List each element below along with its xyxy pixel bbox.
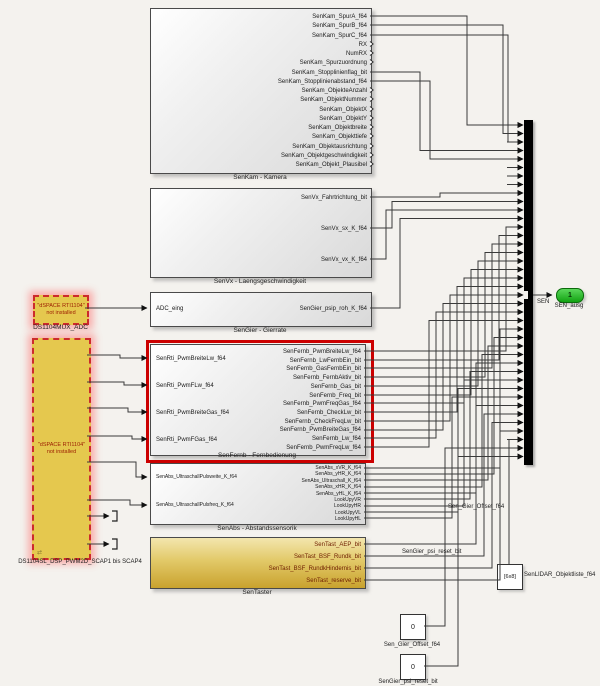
wire (364, 312, 523, 438)
block-senvx[interactable]: SenVx_Fahrtrichtung_bit SenVx_sx_K_f64 S… (150, 188, 372, 278)
constant-label-gier-offset: Sen_Gier_Offset_f64 (352, 642, 472, 648)
outport-label: SEN_ausg (546, 303, 592, 309)
wire (364, 287, 523, 413)
wire (364, 304, 523, 431)
wire (370, 35, 523, 142)
wire (364, 346, 523, 480)
wire (424, 448, 523, 626)
port-label: SenAbs_xHR_K_f64 (315, 485, 365, 490)
constant-gier-offset[interactable]: 0 (400, 614, 426, 640)
wire (424, 457, 523, 667)
port-label: SenKam_Objektgeschwindigkeit (281, 153, 371, 159)
selection-highlight (146, 340, 374, 463)
constant-value: [6x8] (504, 574, 516, 580)
block-label-ds1104mux-adc: DS1104MUX_ADC (18, 324, 103, 331)
port-label: SenVx_sx_K_f64 (321, 226, 371, 232)
constant-value: 0 (411, 664, 415, 671)
port-label: SenKam_Stopplinienabstand_f64 (278, 79, 371, 85)
dspace-title: "dSPACE RTI1104" (38, 442, 85, 449)
wire (370, 202, 523, 229)
block-label-ds1104sl: DS1104SL_DSP_PWM2D_SCAP1 bis SCAP4 (0, 559, 160, 565)
port-label: SenAbs_xVR_K_f64 (315, 466, 365, 471)
port-label: SenVx_vx_K_f64 (321, 257, 371, 263)
port-label: RX (359, 42, 371, 48)
wire (364, 372, 523, 500)
constant-value: 0 (411, 624, 415, 631)
simulink-canvas: SenKam_SpurA_f64 SenKam_SpurB_f64 SenKam… (0, 0, 600, 686)
wire (364, 397, 523, 518)
wire (364, 389, 523, 513)
wire (364, 329, 523, 468)
port-label: SenKam_Stopplinienflag_bit (292, 70, 371, 76)
wire (364, 380, 523, 506)
wire (364, 423, 523, 569)
wire (364, 406, 523, 545)
wire (87, 500, 147, 505)
port-label: LookUpyHL (335, 517, 365, 522)
wire (370, 72, 523, 151)
constant-lidar[interactable]: [6x8] (497, 564, 523, 590)
port-label: ADC_eing (156, 306, 183, 312)
port-label: SenTast_BSF_Rundk_bit (294, 554, 365, 560)
wire (87, 355, 147, 358)
wire (364, 321, 523, 448)
wire (370, 25, 523, 134)
port-label: LookUpyHR (334, 504, 365, 509)
wire (364, 261, 523, 386)
port-label: SenKam_SpurC_f64 (312, 33, 371, 39)
port-label: SenTast_BSF_RundkHindernis_bit (269, 566, 365, 572)
port-label: SenKam_SpurA_f64 (312, 14, 371, 20)
block-label-sengier: SenGier - Gierrate (150, 327, 370, 334)
port-label: SenKam_Objektausrichtung (292, 144, 371, 150)
wire (370, 210, 523, 259)
port-label: SenKam_ObjekteAnzahl (302, 88, 371, 94)
terminator-icons (112, 511, 117, 549)
library-link-icon: ⇄ (37, 549, 42, 556)
wire (370, 81, 523, 159)
port-label: NumRX (346, 51, 371, 57)
port-label: SenAbs_yHL_K_f64 (316, 492, 365, 497)
block-ds1104sl[interactable]: "dSPACE RTI1104" not installed ⇄ (32, 338, 91, 560)
block-label-senabs: SenAbs - Abstandssensorik (150, 525, 364, 532)
block-senkam[interactable]: SenKam_SpurA_f64 SenKam_SpurB_f64 SenKam… (150, 8, 372, 174)
block-label-sentaster: SenTaster (150, 589, 364, 596)
dspace-subtitle: not installed (46, 310, 75, 317)
port-label: SenKam_Objekttiefe (312, 134, 371, 140)
wire (364, 414, 523, 556)
wire (364, 278, 523, 403)
port-label: SenKam_Objekt_Plausibel (296, 162, 371, 168)
port-label: LookUpyVR (334, 498, 365, 503)
wire (364, 431, 523, 580)
wire (87, 408, 147, 412)
mux-input-stubs (507, 125, 523, 457)
block-sentaster[interactable]: SenTast_AEP_bit SenTast_BSF_Rundk_bit Se… (150, 537, 366, 589)
wire-label-offset: Sen_Gier_Offset_f64 (448, 504, 505, 510)
port-label: SenKam_ObjektX (319, 107, 371, 113)
dspace-subtitle: not installed (47, 449, 76, 456)
port-label: SenTast_AEP_bit (314, 542, 365, 548)
wire (87, 382, 147, 385)
outport-sen-ausg[interactable]: 1 (556, 288, 584, 303)
port-label: SenKam_Objektbreite (308, 125, 371, 131)
wire-label-reset: SenGier_psi_reset_bit (402, 549, 462, 555)
wire (364, 227, 523, 351)
wire (364, 355, 523, 488)
wire (364, 295, 523, 421)
wire (509, 440, 523, 565)
block-sengier[interactable]: ADC_eing SenGier_psip_roh_K_f64 (150, 292, 372, 327)
port-label: SenAbs_yHR_K_f64 (315, 472, 365, 477)
port-label: SenTast_reserve_bit (306, 578, 365, 584)
wire (370, 16, 523, 125)
port-label: SenKam_SpurB_f64 (312, 23, 371, 29)
wire (364, 253, 523, 378)
wire (87, 462, 147, 477)
constant-label-psi-reset: SenGier_psi_reset_bit (348, 679, 468, 685)
block-label-senvx: SenVx - Laengsgeschwindigkeit (150, 278, 370, 285)
port-label: SenAbs_Ultraschall_K_f64 (302, 479, 365, 484)
port-label: SenGier_psip_roh_K_f64 (300, 306, 371, 312)
port-label: SenVx_Fahrtrichtung_bit (301, 195, 371, 201)
wire (370, 219, 523, 309)
block-label-senkam: SenKam - Kamera (150, 174, 370, 181)
outport-number: 1 (568, 292, 572, 299)
wire (364, 244, 523, 368)
port-label: LookUpyVL (335, 511, 365, 516)
wire (364, 270, 523, 396)
dspace-title: "dSPACE RTI1104" (37, 303, 84, 310)
constant-label-lidar: SenLIDAR_Objektliste_f64 (524, 572, 595, 578)
port-label: SenKam_Spurzuordnung (300, 60, 371, 66)
wire (87, 436, 147, 439)
wire (364, 236, 523, 361)
block-ds1104mux-adc[interactable]: "dSPACE RTI1104" not installed (33, 295, 89, 325)
port-label: SenKam_ObjektNummer (300, 97, 371, 103)
wire (364, 363, 523, 493)
block-senabs[interactable]: SenAbs_UltraschallPulsweite_K_f64 SenAbs… (150, 463, 366, 525)
mux-block[interactable] (524, 120, 533, 465)
wire (364, 338, 523, 475)
wire (370, 193, 523, 197)
constant-psi-reset[interactable]: 0 (400, 654, 426, 680)
port-label: SenKam_ObjektY (319, 116, 371, 122)
